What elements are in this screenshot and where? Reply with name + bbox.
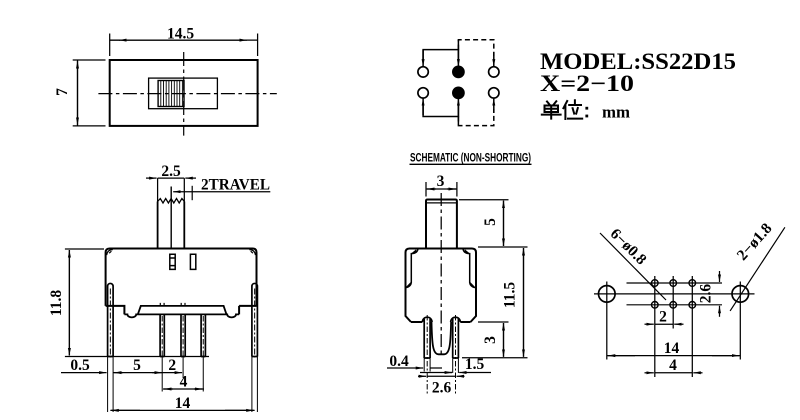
- svg-text:2TRAVEL: 2TRAVEL: [201, 177, 270, 194]
- svg-text:4: 4: [669, 357, 677, 374]
- svg-text:7: 7: [54, 88, 71, 96]
- svg-text:0.4: 0.4: [389, 353, 409, 370]
- svg-text:3: 3: [437, 173, 445, 190]
- svg-text:14: 14: [175, 395, 191, 412]
- svg-text:0.5: 0.5: [70, 357, 90, 374]
- svg-text:2: 2: [168, 357, 176, 374]
- svg-text:11.5: 11.5: [502, 282, 519, 309]
- svg-text:5: 5: [133, 357, 141, 374]
- svg-text:14.5: 14.5: [167, 26, 194, 43]
- svg-text:14: 14: [664, 340, 680, 357]
- svg-text:SCHEMATIC (NON-SHORTING): SCHEMATIC (NON-SHORTING): [410, 151, 531, 165]
- svg-text:2: 2: [659, 309, 667, 326]
- svg-text:1.5: 1.5: [465, 356, 485, 373]
- svg-text:mm: mm: [602, 103, 630, 122]
- svg-text:5: 5: [482, 218, 499, 226]
- svg-text:4: 4: [180, 373, 188, 390]
- svg-text:2.6: 2.6: [698, 284, 715, 304]
- svg-text:11.8: 11.8: [48, 290, 65, 317]
- svg-text:2.5: 2.5: [161, 163, 181, 180]
- svg-text:3: 3: [482, 336, 499, 344]
- svg-text:2.6: 2.6: [432, 380, 452, 397]
- svg-text:X=2−10: X=2−10: [540, 71, 634, 96]
